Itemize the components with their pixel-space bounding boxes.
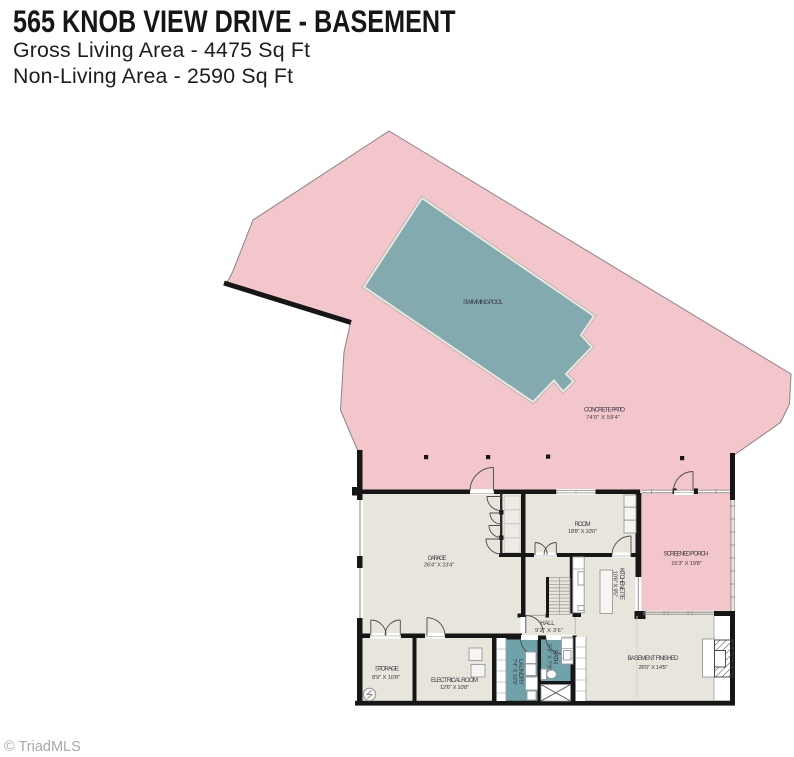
- svg-text:15'3" X 19'8": 15'3" X 19'8": [671, 561, 702, 567]
- svg-text:BASEMENT FINISHED: BASEMENT FINISHED: [628, 655, 680, 662]
- svg-text:SWIMMING POOL: SWIMMING POOL: [463, 299, 504, 306]
- svg-text:BATH: BATH: [552, 650, 559, 664]
- svg-text:26'0" X 14'5": 26'0" X 14'5": [639, 665, 668, 671]
- svg-text:HALL: HALL: [540, 620, 555, 627]
- svg-text:26'4" X 23'4": 26'4" X 23'4": [424, 563, 454, 569]
- svg-text:18'8" X 10'0": 18'8" X 10'0": [568, 529, 597, 535]
- svg-text:LAUNDRY: LAUNDRY: [517, 659, 524, 685]
- svg-text:KITCHENETTE: KITCHENETTE: [618, 568, 625, 600]
- svg-text:10'6" X 9'5": 10'6" X 9'5": [612, 571, 618, 597]
- svg-text:7'4" X 10'9": 7'4" X 10'9": [511, 659, 517, 686]
- svg-text:ELECTRICAL ROOM: ELECTRICAL ROOM: [431, 677, 478, 684]
- svg-text:12'6" X 10'8": 12'6" X 10'8": [440, 685, 469, 691]
- svg-text:CONCRETE PATIO: CONCRETE PATIO: [584, 407, 625, 414]
- svg-text:ROOM: ROOM: [575, 521, 591, 528]
- svg-text:5'3" X 7'9": 5'3" X 7'9": [546, 644, 552, 670]
- svg-text:SCREENED PORCH: SCREENED PORCH: [664, 551, 709, 558]
- svg-text:9'2" X 3'6": 9'2" X 3'6": [535, 628, 563, 634]
- svg-text:74'0" X 59'4": 74'0" X 59'4": [586, 415, 620, 421]
- svg-text:STORAGE: STORAGE: [375, 666, 399, 673]
- svg-text:GARAGE: GARAGE: [428, 555, 447, 562]
- svg-text:8'9" X 10'8": 8'9" X 10'8": [372, 675, 400, 681]
